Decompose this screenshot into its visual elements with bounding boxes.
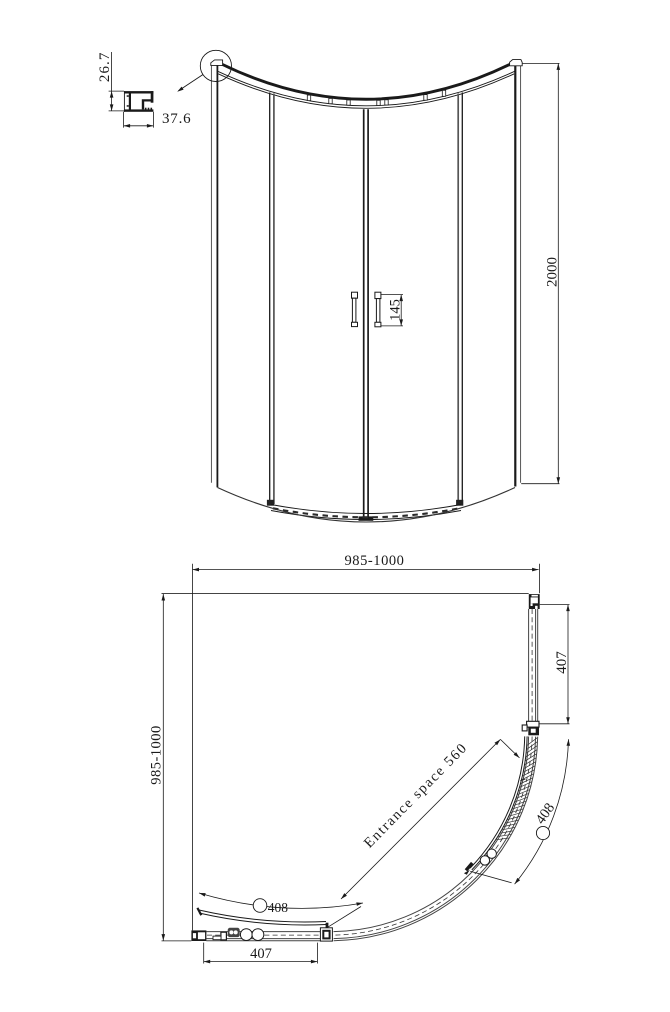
svg-text:145: 145 xyxy=(388,299,404,321)
svg-text:985-1000: 985-1000 xyxy=(345,553,405,569)
svg-text:37.6: 37.6 xyxy=(162,111,191,127)
svg-text:985-1000: 985-1000 xyxy=(149,725,165,785)
svg-text:407: 407 xyxy=(554,651,570,674)
svg-text:26.7: 26.7 xyxy=(97,51,113,82)
svg-text:2000: 2000 xyxy=(545,257,561,287)
svg-text:407: 407 xyxy=(250,946,272,962)
svg-text:408: 408 xyxy=(268,900,289,915)
